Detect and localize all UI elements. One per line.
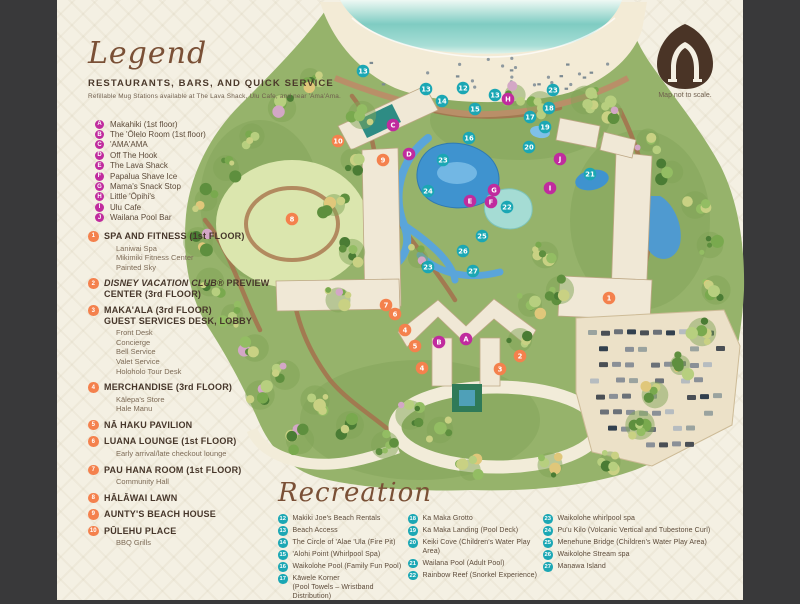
recreation-column: 18Ka Maka Grotto19Ka Maka Landing (Pool … bbox=[408, 514, 543, 604]
restaurant-item: FPapalua Shave Ice bbox=[95, 171, 206, 181]
letter-marker-badge: E bbox=[95, 161, 104, 170]
recreation-marker-badge: 25 bbox=[543, 538, 553, 548]
recreation-label: Waikolohe whirlpool spa bbox=[558, 514, 636, 524]
facility-subitem: Painted Sky bbox=[116, 263, 280, 273]
number-marker-badge: 5 bbox=[88, 420, 99, 431]
svg-text:22: 22 bbox=[502, 203, 512, 211]
recreation-title: Recreation bbox=[278, 478, 432, 508]
map-marker-G: G bbox=[488, 184, 501, 197]
letter-marker-badge: A bbox=[95, 120, 104, 129]
number-marker-badge: 9 bbox=[88, 509, 99, 520]
number-marker-badge: 7 bbox=[88, 465, 99, 476]
map-marker-J: J bbox=[554, 153, 567, 166]
facility-title: HĀLĀWAI LAWN bbox=[104, 493, 280, 504]
map-marker-E: E bbox=[464, 195, 477, 208]
svg-text:I: I bbox=[549, 184, 552, 192]
map-marker-D: D bbox=[403, 148, 416, 161]
facility-subitem: BBQ Grills bbox=[116, 538, 280, 548]
recreation-marker-badge: 24 bbox=[543, 526, 553, 536]
svg-text:10: 10 bbox=[333, 137, 343, 145]
recreation-label: Waikolohe Stream spa bbox=[558, 550, 630, 560]
svg-text:27: 27 bbox=[468, 267, 478, 275]
recreation-label: Pu'u Kilo (Volcanic Vertical and Tubesto… bbox=[558, 526, 711, 536]
facility-subitem: Valet Service bbox=[116, 357, 280, 367]
facility-subitem: Early arrival/late checkout lounge bbox=[116, 449, 280, 459]
facility-subitem: Holoholo Tour Desk bbox=[116, 367, 280, 377]
facility-title: SPA AND FITNESS (1st FLOOR) bbox=[104, 231, 280, 242]
map-marker-13: 13 bbox=[357, 65, 370, 78]
number-marker-badge: 8 bbox=[88, 493, 99, 504]
recreation-item: 17Kāwele Korner (Pool Towels – Wristband… bbox=[278, 574, 408, 601]
restaurant-label: Mama's Snack Stop bbox=[110, 182, 181, 191]
map-marker-2: 2 bbox=[514, 350, 527, 363]
svg-text:G: G bbox=[491, 186, 497, 194]
map-marker-7: 7 bbox=[380, 299, 393, 312]
number-marker-badge: 2 bbox=[88, 278, 99, 289]
recreation-marker-badge: 27 bbox=[543, 562, 553, 572]
facility-sublist: Kālepa's StoreHale Manu bbox=[104, 395, 280, 414]
recreation-label: Ka Maka Landing (Pool Deck) bbox=[423, 526, 519, 536]
map-marker-8: 8 bbox=[286, 213, 299, 226]
number-marker-badge: 4 bbox=[88, 382, 99, 393]
svg-text:18: 18 bbox=[544, 104, 554, 112]
svg-text:25: 25 bbox=[477, 232, 487, 240]
recreation-label: Rainbow Reef (Snorkel Experience) bbox=[423, 571, 538, 581]
facility-title: MAKA'ALA (3rd FLOOR) GUEST SERVICES DESK… bbox=[104, 305, 280, 326]
facility-title: DISNEY VACATION CLUB® PREVIEW CENTER (3r… bbox=[104, 278, 280, 299]
recreation-label: The Circle of 'Alae 'Ula (Fire Pit) bbox=[293, 538, 396, 548]
facility-subitem: Community Hall bbox=[116, 477, 280, 487]
recreation-label: Beach Access bbox=[293, 526, 338, 536]
recreation-item: 13Beach Access bbox=[278, 526, 408, 536]
svg-text:7: 7 bbox=[384, 301, 389, 309]
letter-marker-badge: H bbox=[95, 192, 104, 201]
restaurant-label: The 'Ōlelo Room (1st floor) bbox=[110, 130, 206, 139]
map-marker-22: 22 bbox=[501, 201, 514, 214]
recreation-label: Makiki Joe's Beach Rentals bbox=[293, 514, 381, 524]
facility-sublist: Community Hall bbox=[104, 477, 280, 487]
legend-title: Legend bbox=[88, 36, 207, 71]
svg-text:14: 14 bbox=[437, 97, 447, 105]
map-marker-F: F bbox=[485, 196, 498, 209]
recreation-label: Ka Maka Grotto bbox=[423, 514, 473, 524]
recreation-marker-badge: 18 bbox=[408, 514, 418, 524]
map-marker-6: 6 bbox=[389, 308, 402, 321]
recreation-item: 20Keiki Cove (Children's Water Play Area… bbox=[408, 538, 543, 556]
letter-marker-badge: C bbox=[95, 140, 104, 149]
facility-item: 6LUANA LOUNGE (1st FLOOR)Early arrival/l… bbox=[88, 436, 280, 458]
svg-text:24: 24 bbox=[423, 187, 433, 195]
map-marker-16: 16 bbox=[463, 132, 476, 145]
recreation-item: 14The Circle of 'Alae 'Ula (Fire Pit) bbox=[278, 538, 408, 548]
restaurant-label: Little 'Ōpihi's bbox=[110, 192, 155, 201]
recreation-marker-badge: 16 bbox=[278, 562, 288, 572]
facility-title: PŪLEHU PLACE bbox=[104, 526, 280, 537]
letter-marker-badge: I bbox=[95, 203, 104, 212]
restaurant-label: Off The Hook bbox=[110, 151, 157, 160]
svg-text:21: 21 bbox=[585, 170, 595, 178]
recreation-marker-badge: 17 bbox=[278, 574, 288, 584]
recreation-item: 22Rainbow Reef (Snorkel Experience) bbox=[408, 571, 543, 581]
svg-text:12: 12 bbox=[458, 84, 468, 92]
recreation-label: 'Alohi Point (Whirlpool Spa) bbox=[293, 550, 381, 560]
svg-text:6: 6 bbox=[393, 310, 398, 318]
recreation-marker-badge: 26 bbox=[543, 550, 553, 560]
recreation-marker-badge: 15 bbox=[278, 550, 288, 560]
svg-text:C: C bbox=[391, 121, 396, 129]
svg-text:15: 15 bbox=[470, 105, 480, 113]
map-marker-15: 15 bbox=[469, 103, 482, 116]
facility-subitem: Mikimiki Fitness Center bbox=[116, 253, 280, 263]
restaurant-label: Makahiki (1st floor) bbox=[110, 120, 178, 129]
recreation-item: 23Waikolohe whirlpool spa bbox=[543, 514, 741, 524]
letter-marker-badge: D bbox=[95, 151, 104, 160]
map-marker-10: 10 bbox=[332, 135, 345, 148]
facility-item: 4MERCHANDISE (3rd FLOOR)Kālepa's StoreHa… bbox=[88, 382, 280, 414]
map-marker-23: 23 bbox=[437, 154, 450, 167]
facility-item: 2DISNEY VACATION CLUB® PREVIEW CENTER (3… bbox=[88, 278, 280, 299]
facility-subitem: Bell Service bbox=[116, 347, 280, 357]
facility-subitem: Concierge bbox=[116, 338, 280, 348]
recreation-column: 12Makiki Joe's Beach Rentals13Beach Acce… bbox=[278, 514, 408, 604]
svg-text:4: 4 bbox=[420, 364, 425, 372]
svg-text:13: 13 bbox=[490, 91, 500, 99]
facility-sublist: Early arrival/late checkout lounge bbox=[104, 449, 280, 459]
map-marker-14: 14 bbox=[436, 95, 449, 108]
porte-cochere bbox=[452, 384, 482, 412]
number-marker-badge: 6 bbox=[88, 436, 99, 447]
svg-text:23: 23 bbox=[423, 263, 433, 271]
svg-text:26: 26 bbox=[458, 247, 468, 255]
recreation-item: 16Waikolohe Pool (Family Fun Pool) bbox=[278, 562, 408, 572]
recreation-marker-badge: 20 bbox=[408, 538, 418, 548]
refillable-mug-note: Refillable Mug Stations available at The… bbox=[88, 93, 341, 100]
map-marker-13: 13 bbox=[420, 83, 433, 96]
recreation-item: 18Ka Maka Grotto bbox=[408, 514, 543, 524]
facility-item: 7PAU HANA ROOM (1st FLOOR)Community Hall bbox=[88, 465, 280, 487]
facility-item: 8HĀLĀWAI LAWN bbox=[88, 493, 280, 504]
svg-text:19: 19 bbox=[540, 123, 550, 131]
restaurant-label: 'AMA'AMA bbox=[110, 140, 148, 149]
restaurant-item: JWailana Pool Bar bbox=[95, 213, 206, 223]
facility-subitem: Kālepa's Store bbox=[116, 395, 280, 405]
recreation-label: Kāwele Korner (Pool Towels – Wristband D… bbox=[293, 574, 409, 601]
recreation-label: Manawa Island bbox=[558, 562, 606, 572]
facility-title: AUNTY'S BEACH HOUSE bbox=[104, 509, 280, 520]
facility-list: 1SPA AND FITNESS (1st FLOOR)Laniwai SpaM… bbox=[88, 231, 280, 554]
svg-text:17: 17 bbox=[525, 113, 535, 121]
facility-item: 3MAKA'ALA (3rd FLOOR) GUEST SERVICES DES… bbox=[88, 305, 280, 376]
letter-marker-badge: J bbox=[95, 213, 104, 222]
letter-marker-badge: G bbox=[95, 182, 104, 191]
map-marker-25: 25 bbox=[476, 230, 489, 243]
number-marker-badge: 3 bbox=[88, 305, 99, 316]
restaurant-item: EThe Lava Shack bbox=[95, 161, 206, 171]
svg-text:E: E bbox=[468, 197, 473, 205]
facility-sublist: BBQ Grills bbox=[104, 538, 280, 548]
map-marker-4: 4 bbox=[399, 324, 412, 337]
restaurant-label: The Lava Shack bbox=[110, 161, 168, 170]
map-marker-20: 20 bbox=[523, 141, 536, 154]
letter-marker-badge: F bbox=[95, 172, 104, 181]
svg-text:23: 23 bbox=[438, 156, 448, 164]
svg-text:B: B bbox=[436, 338, 441, 346]
restaurant-item: BThe 'Ōlelo Room (1st floor) bbox=[95, 129, 206, 139]
map-marker-21: 21 bbox=[584, 168, 597, 181]
map-scale-note: Map not to scale. bbox=[645, 92, 725, 99]
recreation-item: 21Wailana Pool (Adult Pool) bbox=[408, 559, 543, 569]
number-marker-badge: 1 bbox=[88, 231, 99, 242]
map-marker-B: B bbox=[433, 336, 446, 349]
svg-text:D: D bbox=[406, 150, 412, 158]
facility-title: MERCHANDISE (3rd FLOOR) bbox=[104, 382, 280, 393]
map-marker-18: 18 bbox=[543, 102, 556, 115]
map-marker-23: 23 bbox=[422, 261, 435, 274]
restaurant-item: HLittle 'Ōpihi's bbox=[95, 192, 206, 202]
map-marker-H: H bbox=[502, 93, 515, 106]
map-marker-17: 17 bbox=[524, 111, 537, 124]
facility-title: PAU HANA ROOM (1st FLOOR) bbox=[104, 465, 280, 476]
restaurant-list: AMakahiki (1st floor)BThe 'Ōlelo Room (1… bbox=[95, 119, 206, 223]
svg-text:9: 9 bbox=[381, 156, 386, 164]
recreation-marker-badge: 23 bbox=[543, 514, 553, 524]
map-marker-9: 9 bbox=[377, 154, 390, 167]
facility-subitem: Hale Manu bbox=[116, 404, 280, 414]
restaurants-section-title: RESTAURANTS, BARS, AND QUICK SERVICE bbox=[88, 78, 334, 89]
map-marker-12: 12 bbox=[457, 82, 470, 95]
svg-text:J: J bbox=[558, 155, 562, 163]
recreation-marker-badge: 12 bbox=[278, 514, 288, 524]
recreation-label: Keiki Cove (Children's Water Play Area) bbox=[423, 538, 544, 556]
restaurant-item: AMakahiki (1st floor) bbox=[95, 119, 206, 129]
kukui-nut-shape bbox=[657, 24, 713, 89]
recreation-marker-badge: 21 bbox=[408, 559, 418, 569]
recreation-item: 12Makiki Joe's Beach Rentals bbox=[278, 514, 408, 524]
restaurant-label: Wailana Pool Bar bbox=[110, 213, 172, 222]
map-marker-C: C bbox=[387, 119, 400, 132]
recreation-item: 26Waikolohe Stream spa bbox=[543, 550, 741, 560]
restaurant-label: Ulu Cafe bbox=[110, 203, 141, 212]
map-marker-A: A bbox=[460, 333, 473, 346]
map-marker-I: I bbox=[544, 182, 557, 195]
facility-item: 10PŪLEHU PLACEBBQ Grills bbox=[88, 526, 280, 548]
svg-text:F: F bbox=[489, 198, 494, 206]
restaurant-item: GMama's Snack Stop bbox=[95, 181, 206, 191]
recreation-marker-badge: 19 bbox=[408, 526, 418, 536]
map-marker-5: 5 bbox=[409, 340, 422, 353]
restaurant-label: Papalua Shave Ice bbox=[110, 172, 177, 181]
svg-text:5: 5 bbox=[413, 342, 418, 350]
recreation-marker-badge: 14 bbox=[278, 538, 288, 548]
svg-text:H: H bbox=[505, 95, 511, 103]
map-marker-1: 1 bbox=[603, 292, 616, 305]
svg-text:20: 20 bbox=[524, 143, 534, 151]
svg-text:13: 13 bbox=[358, 67, 368, 75]
restaurant-item: C'AMA'AMA bbox=[95, 140, 206, 150]
facility-title: LUANA LOUNGE (1st FLOOR) bbox=[104, 436, 280, 447]
number-marker-badge: 10 bbox=[88, 526, 99, 537]
svg-text:13: 13 bbox=[421, 85, 431, 93]
restaurant-item: DOff The Hook bbox=[95, 150, 206, 160]
facility-title: NĀ HAKU PAVILION bbox=[104, 420, 280, 431]
letter-marker-badge: B bbox=[95, 130, 104, 139]
recreation-label: Menehune Bridge (Children's Water Play A… bbox=[558, 538, 707, 548]
recreation-item: 24Pu'u Kilo (Volcanic Vertical and Tubes… bbox=[543, 526, 741, 536]
facility-item: 5NĀ HAKU PAVILION bbox=[88, 420, 280, 431]
recreation-list: 12Makiki Joe's Beach Rentals13Beach Acce… bbox=[278, 514, 741, 604]
svg-text:3: 3 bbox=[498, 365, 503, 373]
facility-subitem: Laniwai Spa bbox=[116, 244, 280, 254]
facility-item: 1SPA AND FITNESS (1st FLOOR)Laniwai SpaM… bbox=[88, 231, 280, 272]
recreation-marker-badge: 22 bbox=[408, 571, 418, 581]
map-marker-27: 27 bbox=[467, 265, 480, 278]
svg-text:16: 16 bbox=[464, 134, 474, 142]
svg-text:4: 4 bbox=[403, 326, 408, 334]
recreation-item: 15'Alohi Point (Whirlpool Spa) bbox=[278, 550, 408, 560]
map-marker-4: 4 bbox=[416, 362, 429, 375]
recreation-label: Waikolohe Pool (Family Fun Pool) bbox=[293, 562, 402, 572]
restaurant-item: IUlu Cafe bbox=[95, 202, 206, 212]
resort-logo bbox=[657, 24, 713, 89]
svg-text:A: A bbox=[463, 335, 469, 343]
recreation-marker-badge: 13 bbox=[278, 526, 288, 536]
svg-text:23: 23 bbox=[548, 86, 558, 94]
svg-text:1: 1 bbox=[607, 294, 612, 302]
recreation-item: 27Manawa Island bbox=[543, 562, 741, 572]
recreation-column: 23Waikolohe whirlpool spa24Pu'u Kilo (Vo… bbox=[543, 514, 741, 604]
facility-subitem: Front Desk bbox=[116, 328, 280, 338]
map-marker-19: 19 bbox=[539, 121, 552, 134]
map-marker-13: 13 bbox=[489, 89, 502, 102]
map-marker-23: 23 bbox=[547, 84, 560, 97]
facility-item: 9AUNTY'S BEACH HOUSE bbox=[88, 509, 280, 520]
svg-text:2: 2 bbox=[518, 352, 523, 360]
recreation-label: Wailana Pool (Adult Pool) bbox=[423, 559, 505, 569]
map-marker-24: 24 bbox=[422, 185, 435, 198]
recreation-item: 19Ka Maka Landing (Pool Deck) bbox=[408, 526, 543, 536]
facility-sublist: Front DeskConciergeBell ServiceValet Ser… bbox=[104, 328, 280, 376]
map-marker-3: 3 bbox=[494, 363, 507, 376]
facility-sublist: Laniwai SpaMikimiki Fitness CenterPainte… bbox=[104, 244, 280, 273]
map-marker-26: 26 bbox=[457, 245, 470, 258]
svg-text:8: 8 bbox=[290, 215, 295, 223]
recreation-item: 25Menehune Bridge (Children's Water Play… bbox=[543, 538, 741, 548]
